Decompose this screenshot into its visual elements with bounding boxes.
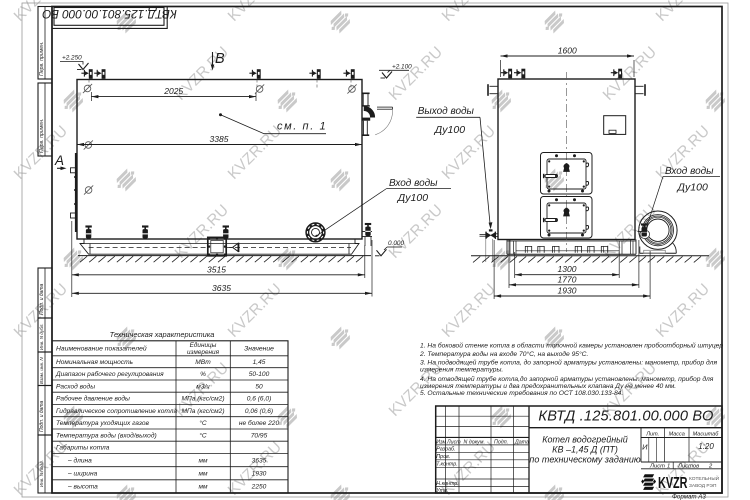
svg-text:Разраб.: Разраб.: [436, 447, 455, 453]
svg-text:1300: 1300: [558, 264, 577, 274]
svg-text:– высота: – высота: [67, 484, 98, 491]
svg-text:0.000: 0.000: [388, 240, 404, 247]
svg-text:измерения температуры и два пр: измерения температуры и два предохраните…: [420, 382, 676, 390]
svg-text:Утв.: Утв.: [436, 488, 448, 494]
svg-text:2025: 2025: [163, 86, 183, 96]
svg-text:Перв. примен.: Перв. примен.: [39, 119, 45, 153]
svg-text:50: 50: [255, 383, 263, 390]
svg-text:МВт: МВт: [195, 359, 211, 366]
svg-text:м3/ч: м3/ч: [196, 383, 210, 390]
svg-text:– ширина: – ширина: [67, 471, 98, 478]
svg-text:Масса: Масса: [669, 431, 685, 437]
svg-text:Техническая характеристика: Техническая характеристика: [110, 330, 215, 339]
svg-text:3515: 3515: [207, 264, 226, 274]
svg-text:3. На подводящей трубе котла,: 3. На подводящей трубе котла, до запорно…: [420, 359, 717, 367]
svg-text:1600: 1600: [558, 46, 577, 56]
svg-text:°С: °С: [199, 419, 207, 427]
svg-text:°С: °С: [199, 431, 207, 439]
svg-text:70/95: 70/95: [251, 432, 268, 439]
svg-text:2. Температура воды на входе: 2. Температура воды на входе 70°С, на вы…: [419, 350, 589, 358]
svg-text:по техническому заданию: по техническому заданию: [529, 455, 640, 465]
svg-text:мм: мм: [198, 484, 208, 491]
svg-text:N докум.: N докум.: [464, 439, 485, 445]
svg-text:1: 1: [667, 464, 670, 470]
svg-text:1930: 1930: [252, 471, 267, 478]
svg-text:1930: 1930: [558, 286, 577, 296]
svg-text:КВТД .125.801.00.000 ВО: КВТД .125.801.00.000 ВО: [538, 409, 713, 425]
svg-text:Взам. инв. N: Взам. инв. N: [39, 357, 44, 384]
svg-text:МПа (кгс/см2): МПа (кгс/см2): [181, 408, 224, 415]
svg-text:%: %: [200, 371, 206, 378]
svg-text:Наименование показателей: Наименование показателей: [56, 345, 147, 353]
svg-text:Перв. примен.: Перв. примен.: [39, 42, 45, 76]
svg-text:Инв. N подл.: Инв. N подл.: [39, 460, 44, 487]
svg-text:ЗАВОД РЭП: ЗАВОД РЭП: [689, 483, 717, 489]
svg-text:Т.контр.: Т.контр.: [436, 462, 457, 468]
svg-text:Вход воды: Вход воды: [665, 166, 714, 177]
svg-text:Масштаб: Масштаб: [693, 431, 720, 437]
svg-text:0,6 (6,0): 0,6 (6,0): [247, 396, 272, 403]
svg-text:Подп. и дата: Подп. и дата: [39, 283, 45, 315]
svg-text:см. п. 1: см. п. 1: [277, 121, 327, 133]
svg-text:5. Остальные технические треб: 5. Остальные технические требования по О…: [420, 389, 623, 397]
svg-text:Лист: Лист: [649, 464, 665, 470]
svg-text:Лист: Лист: [446, 439, 461, 445]
svg-text:КВ –1,45 Д (ПТ): КВ –1,45 Д (ПТ): [552, 445, 618, 455]
svg-text:Ду100: Ду100: [397, 192, 428, 204]
svg-text:Изм: Изм: [436, 439, 446, 445]
svg-text:Ду100: Ду100: [434, 124, 465, 136]
svg-text:KVZR: KVZR: [658, 475, 688, 492]
svg-text:Лит.: Лит.: [645, 431, 659, 437]
svg-text:Листов: Листов: [677, 464, 699, 470]
svg-text:МПа (кгс/см2): МПа (кгс/см2): [181, 396, 224, 403]
svg-text:Подп. и дата: Подп. и дата: [39, 400, 45, 432]
svg-text:КВТД.125.801.00.000 ВО: КВТД.125.801.00.000 ВО: [42, 7, 177, 21]
svg-text:Номинальная мощность: Номинальная мощность: [56, 359, 134, 366]
svg-text:не более 220: не более 220: [239, 419, 280, 427]
svg-text:1770: 1770: [558, 274, 577, 284]
svg-text:Диапазон рабочего регулировани: Диапазон рабочего регулирования: [55, 370, 164, 378]
svg-text:3635: 3635: [212, 283, 231, 293]
svg-text:измерения: измерения: [187, 349, 220, 356]
svg-text:Вход воды: Вход воды: [389, 178, 438, 189]
svg-text:1:20: 1:20: [698, 442, 714, 451]
svg-text:3385: 3385: [210, 134, 229, 144]
svg-text:Значение: Значение: [244, 346, 274, 353]
svg-text:В: В: [215, 51, 225, 67]
svg-text:– длина: – длина: [67, 456, 92, 464]
svg-text:0,06 (0,6): 0,06 (0,6): [245, 408, 273, 415]
svg-text:+2.250: +2.250: [62, 55, 82, 62]
svg-text:мм: мм: [198, 457, 208, 464]
svg-text:Температура воды (вход/выход): Температура воды (вход/выход): [56, 431, 157, 439]
svg-text:Рабочее давление воды: Рабочее давление воды: [56, 395, 130, 403]
svg-text:Пров.: Пров.: [436, 454, 450, 460]
svg-text:Температура уходящих газов: Температура уходящих газов: [56, 419, 149, 427]
svg-text:Инв. N дубл.: Инв. N дубл.: [39, 323, 44, 350]
svg-text:1,45: 1,45: [253, 359, 266, 366]
svg-text:Формат А3: Формат А3: [672, 494, 706, 500]
svg-text:Дата: Дата: [514, 439, 529, 445]
svg-text:1. На боковой стенке котла в: 1. На боковой стенке котла в области топ…: [420, 342, 723, 350]
svg-text:измерения температуры.: измерения температуры.: [420, 366, 503, 373]
svg-text:Единицы: Единицы: [190, 341, 217, 349]
svg-text:Расход воды: Расход воды: [56, 382, 95, 390]
svg-text:А: А: [54, 153, 64, 168]
svg-text:Выход воды: Выход воды: [418, 106, 475, 117]
svg-text:Н.контр.: Н.контр.: [436, 481, 458, 487]
svg-text:Котел водогрейный: Котел водогрейный: [542, 435, 628, 445]
svg-text:Подп.: Подп.: [494, 439, 508, 445]
svg-text:Ду100: Ду100: [677, 182, 708, 194]
svg-text:50-100: 50-100: [249, 371, 270, 378]
svg-text:3635: 3635: [252, 457, 267, 464]
svg-text:Гидравлическое сопротивление к: Гидравлическое сопротивление котла: [56, 407, 177, 415]
svg-text:Габариты котла: Габариты котла: [56, 444, 110, 452]
svg-text:4. На отводящей трубе котла,д: 4. На отводящей трубе котла,до запорной …: [420, 375, 714, 383]
svg-text:И: И: [642, 443, 648, 452]
svg-text:мм: мм: [198, 471, 208, 478]
svg-text:2250: 2250: [251, 484, 267, 491]
svg-text:+2.100: +2.100: [392, 64, 412, 71]
